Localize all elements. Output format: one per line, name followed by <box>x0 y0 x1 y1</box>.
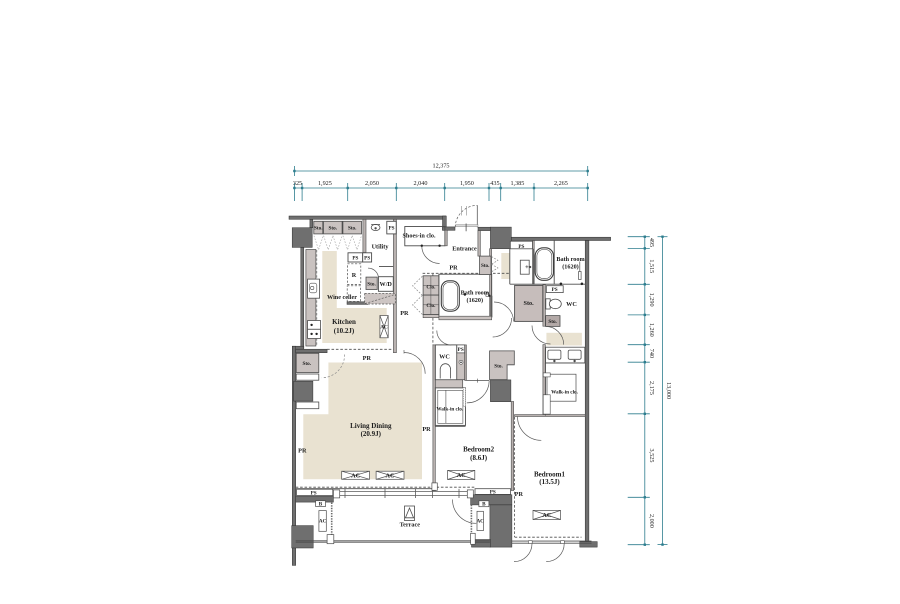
svg-text:W/D: W/D <box>380 281 393 288</box>
svg-text:1,515: 1,515 <box>648 259 655 273</box>
svg-text:(1620): (1620) <box>562 263 579 270</box>
svg-text:AC: AC <box>542 512 551 519</box>
svg-text:Kitchen: Kitchen <box>332 318 356 326</box>
svg-text:PR: PR <box>400 310 409 317</box>
svg-text:Sto.: Sto. <box>367 282 376 288</box>
svg-text:Terrace: Terrace <box>400 522 421 529</box>
svg-text:PS: PS <box>352 255 358 261</box>
svg-text:Bath room: Bath room <box>461 290 490 297</box>
svg-text:Wine celler: Wine celler <box>327 294 357 301</box>
svg-text:Sto.: Sto. <box>303 361 312 367</box>
svg-text:AC: AC <box>386 472 395 479</box>
svg-text:2,040: 2,040 <box>414 180 428 187</box>
svg-text:PR: PR <box>363 355 372 362</box>
svg-text:2,265: 2,265 <box>554 180 568 187</box>
svg-text:PS: PS <box>388 226 394 232</box>
svg-text:Clo.: Clo. <box>426 284 436 290</box>
svg-text:PS: PS <box>490 489 496 495</box>
svg-text:PS: PS <box>552 287 558 293</box>
svg-text:Living Dining: Living Dining <box>350 422 392 430</box>
svg-text:1,925: 1,925 <box>318 180 332 187</box>
svg-text:PS: PS <box>311 491 317 497</box>
svg-text:2,000: 2,000 <box>648 514 655 528</box>
svg-text:1,260: 1,260 <box>648 323 655 337</box>
svg-text:2,050: 2,050 <box>365 180 379 187</box>
svg-text:495: 495 <box>648 238 655 247</box>
svg-text:WC: WC <box>439 353 450 360</box>
svg-text:PR: PR <box>449 265 458 272</box>
svg-text:Sto.: Sto. <box>481 263 490 269</box>
svg-text:(13.5J): (13.5J) <box>539 478 560 486</box>
svg-text:435: 435 <box>490 180 499 187</box>
svg-text:B: B <box>482 502 486 508</box>
svg-text:(8.6J): (8.6J) <box>470 454 488 462</box>
svg-text:12,375: 12,375 <box>432 163 449 170</box>
svg-text:Bedroom2: Bedroom2 <box>463 446 494 454</box>
svg-text:1,950: 1,950 <box>460 180 474 187</box>
svg-text:WC: WC <box>566 301 577 308</box>
svg-text:PS: PS <box>518 244 524 250</box>
svg-text:Entrance: Entrance <box>452 245 477 252</box>
svg-text:Bedroom1: Bedroom1 <box>534 470 565 478</box>
svg-text:AC: AC <box>319 519 327 525</box>
svg-text:1,385: 1,385 <box>510 180 524 187</box>
svg-text:PS: PS <box>458 347 464 353</box>
svg-text:Utility: Utility <box>372 243 390 250</box>
svg-text:Walk-in clo.: Walk-in clo. <box>436 407 464 413</box>
svg-text:AC: AC <box>380 325 388 331</box>
svg-text:Sto.: Sto. <box>524 300 535 307</box>
svg-text:AC: AC <box>476 519 484 525</box>
svg-text:(10.2J): (10.2J) <box>334 327 355 335</box>
svg-text:PS: PS <box>364 255 370 261</box>
svg-text:325: 325 <box>293 180 302 187</box>
svg-text:PR: PR <box>515 491 524 498</box>
svg-text:Clo.: Clo. <box>426 303 436 309</box>
svg-text:Sto.: Sto. <box>314 225 323 231</box>
svg-text:2,175: 2,175 <box>648 381 655 395</box>
svg-text:AC: AC <box>351 472 360 479</box>
svg-text:Sto.: Sto. <box>348 225 357 231</box>
svg-text:(20.9J): (20.9J) <box>361 430 382 438</box>
svg-text:Sto.: Sto. <box>548 319 557 325</box>
svg-text:R: R <box>352 272 357 279</box>
svg-text:(1620): (1620) <box>467 297 484 304</box>
svg-text:Walk-in clo.: Walk-in clo. <box>551 390 579 396</box>
svg-text:PR: PR <box>422 426 431 433</box>
svg-text:Sto.: Sto. <box>494 363 503 369</box>
svg-text:B: B <box>319 502 323 508</box>
svg-text:Shoes-in clo.: Shoes-in clo. <box>402 233 435 240</box>
svg-text:AC: AC <box>457 472 466 479</box>
svg-text:PR: PR <box>298 448 307 455</box>
svg-text:1,290: 1,290 <box>648 293 655 307</box>
svg-text:Sto.: Sto. <box>329 225 338 231</box>
svg-text:740: 740 <box>648 349 655 358</box>
svg-text:3,525: 3,525 <box>648 449 655 463</box>
svg-text:13,000: 13,000 <box>665 382 672 399</box>
svg-text:Bath room: Bath room <box>556 256 585 263</box>
